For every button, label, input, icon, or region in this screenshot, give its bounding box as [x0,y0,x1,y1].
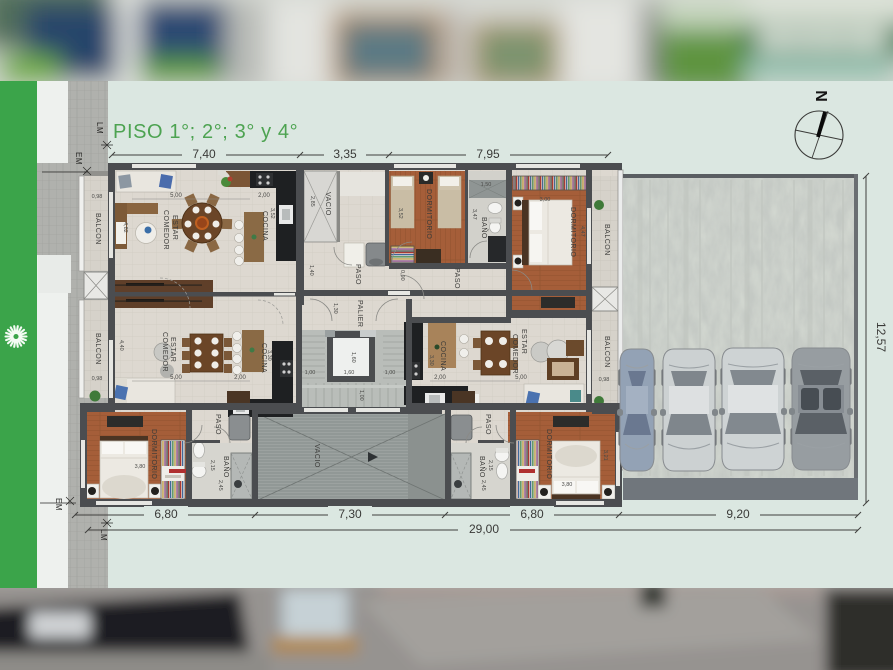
svg-text:5,00: 5,00 [515,375,527,381]
svg-text:DORMITORIO: DORMITORIO [425,189,432,239]
svg-text:BAÑO: BAÑO [222,456,231,478]
svg-text:1,60: 1,60 [350,352,356,363]
svg-text:LM: LM [95,122,104,134]
svg-text:0,98: 0,98 [92,194,103,200]
svg-text:12,57: 12,57 [874,322,888,352]
svg-text:3,80: 3,80 [135,464,146,470]
svg-text:3,35: 3,35 [333,147,357,161]
svg-text:2,00: 2,00 [234,375,246,381]
svg-text:1,00: 1,00 [385,370,396,376]
svg-text:DORMITORIO: DORMITORIO [150,429,157,479]
svg-text:BAÑO: BAÑO [480,217,489,239]
svg-text:COMEDOR: COMEDOR [511,334,518,374]
svg-text:3,30: 3,30 [428,355,434,366]
svg-text:3,00: 3,00 [540,197,551,203]
svg-text:2,15: 2,15 [487,460,493,471]
svg-text:BAÑO: BAÑO [478,456,487,478]
svg-text:2,00: 2,00 [434,375,446,381]
svg-text:0,90: 0,90 [399,270,405,281]
svg-text:2,00: 2,00 [258,193,270,199]
svg-text:LM: LM [99,529,108,541]
svg-text:BALCON: BALCON [94,213,101,245]
svg-text:1,40: 1,40 [308,265,314,276]
svg-text:1,60: 1,60 [344,370,355,376]
svg-text:COCINA: COCINA [261,211,268,241]
svg-text:2,15: 2,15 [209,460,215,471]
svg-text:COCINA: COCINA [439,341,446,371]
svg-text:4,40: 4,40 [118,340,124,351]
svg-text:PALIER: PALIER [356,300,363,327]
svg-text:3,52: 3,52 [269,208,275,219]
svg-text:BALCON: BALCON [94,333,101,365]
svg-text:5,00: 5,00 [170,375,182,381]
svg-text:DORMITORIO: DORMITORIO [569,207,576,257]
svg-text:7,30: 7,30 [338,507,362,521]
svg-text:2,85: 2,85 [309,196,315,207]
svg-text:BALCON: BALCON [603,336,610,368]
svg-text:5,00: 5,00 [170,193,182,199]
svg-text:7,95: 7,95 [476,147,500,161]
svg-text:2,45: 2,45 [480,480,486,491]
svg-text:1,00: 1,00 [358,390,364,401]
svg-text:3,30: 3,30 [266,350,272,361]
svg-text:ESTAR: ESTAR [171,215,178,240]
svg-text:VACIO: VACIO [324,192,331,216]
svg-text:29,00: 29,00 [469,522,499,536]
svg-text:3,47: 3,47 [471,209,477,220]
svg-text:6,80: 6,80 [154,507,178,521]
svg-text:COCINA: COCINA [260,343,267,373]
svg-text:3,21: 3,21 [602,450,608,461]
svg-text:1,50: 1,50 [481,182,492,188]
svg-text:0,98: 0,98 [92,376,103,382]
svg-text:3,80: 3,80 [562,482,573,488]
svg-text:ESTAR: ESTAR [169,337,176,362]
svg-text:ESTAR: ESTAR [520,329,527,354]
svg-text:EM: EM [74,152,83,165]
svg-text:PASO: PASO [484,414,491,435]
svg-text:9,20: 9,20 [726,507,750,521]
svg-text:COMEDOR: COMEDOR [161,332,168,372]
svg-text:BALCON: BALCON [603,224,610,256]
svg-text:N: N [812,90,829,102]
svg-text:PASO: PASO [214,414,221,435]
svg-text:7,40: 7,40 [192,147,216,161]
svg-text:1,00: 1,00 [305,370,316,376]
svg-text:1,30: 1,30 [332,303,338,314]
svg-text:PASO: PASO [354,264,361,285]
svg-text:3,52: 3,52 [397,208,403,219]
svg-text:0,98: 0,98 [599,377,610,383]
svg-text:COMEDOR: COMEDOR [162,210,169,250]
svg-text:PISO 1°; 2°; 3° y 4°: PISO 1°; 2°; 3° y 4° [113,121,298,143]
svg-text:6,80: 6,80 [520,507,544,521]
svg-text:EM: EM [54,498,63,511]
svg-text:2,45: 2,45 [217,480,223,491]
svg-text:DORMITORIO: DORMITORIO [545,429,552,479]
svg-text:4,47: 4,47 [579,226,585,237]
svg-text:4,82: 4,82 [122,222,128,233]
svg-text:VACIO: VACIO [313,444,320,468]
svg-text:PASO: PASO [453,268,460,289]
